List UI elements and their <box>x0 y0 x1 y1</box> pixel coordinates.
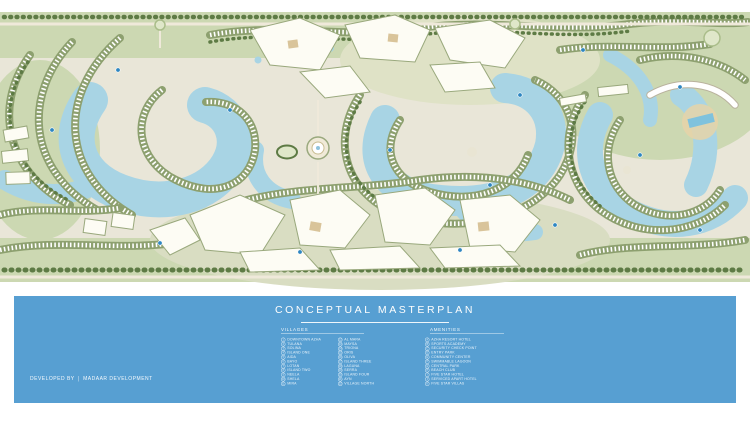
amenities-column: A AZHA RESORT HOTEL B SPORTS ACADEMY C S… <box>425 338 525 386</box>
title-underline <box>301 322 449 323</box>
villages-column-2: 12 AL MARA 13 MAYSA 14 TRIONA <box>338 338 374 386</box>
legend-item: K FIVE STAR VILLAS <box>425 381 525 385</box>
legend-item: 11 MIRA <box>281 381 338 385</box>
developer-credit-label: DEVELOPED BY <box>30 376 75 382</box>
developer-name: MADAAR DEVELOPMENT <box>83 376 153 382</box>
legend-item-label: MIRA <box>287 382 296 386</box>
masterplan-map <box>0 0 750 292</box>
info-band: CONCEPTUAL MASTERPLAN VILLAGES 1 DOWNTOW… <box>14 296 736 403</box>
legend-item-number: 11 <box>281 381 286 386</box>
legend-item-label: FIVE STAR VILLAS <box>431 382 464 386</box>
legend-amenities-rule <box>430 334 504 335</box>
masterplan-map-canvas <box>0 0 750 292</box>
legend-item-number: K <box>425 381 430 386</box>
legend-item: 22 VILLAGE NORTH <box>338 381 374 385</box>
legend-villages-rule <box>281 334 364 335</box>
legend-amenities: AMENITIES A AZHA RESORT HOTEL B SPORTS A… <box>425 327 525 386</box>
page-title: CONCEPTUAL MASTERPLAN <box>14 304 736 316</box>
legend-item-number: 22 <box>338 381 343 386</box>
masterplan-page: CONCEPTUAL MASTERPLAN VILLAGES 1 DOWNTOW… <box>0 0 750 430</box>
developer-credit-separator <box>79 376 80 382</box>
legend-amenities-header: AMENITIES <box>430 327 525 332</box>
developer-credit: DEVELOPED BY MADAAR DEVELOPMENT <box>30 376 153 382</box>
legend-item-label: VILLAGE NORTH <box>344 382 374 386</box>
villages-column-1: 1 DOWNTOWN AZHA 2 TULANA 3 SOLINA <box>281 338 338 386</box>
